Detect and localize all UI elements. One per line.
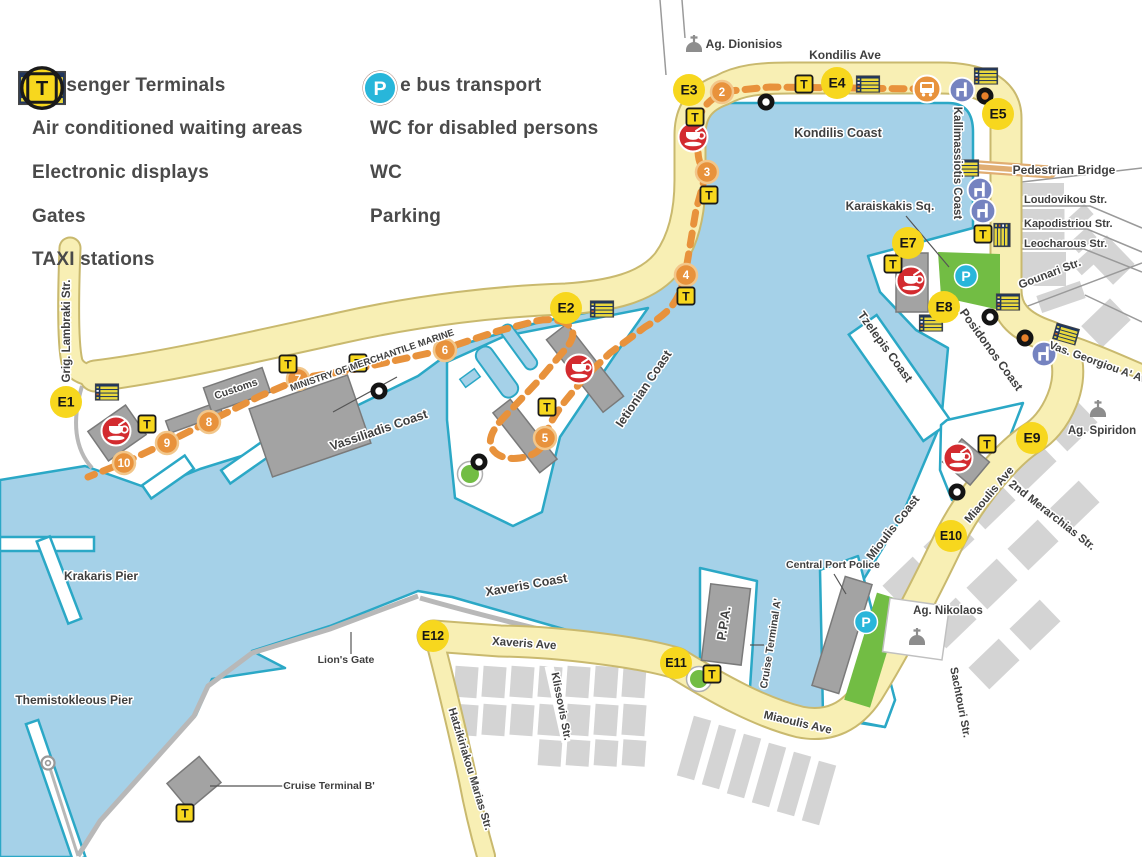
wc-icon bbox=[758, 94, 775, 111]
legend-label: Parking bbox=[370, 206, 441, 228]
legend-label: Electronic displays bbox=[32, 162, 209, 184]
city-block bbox=[622, 739, 647, 767]
taxi-icon: T bbox=[677, 287, 694, 304]
terminal-icon bbox=[679, 123, 708, 152]
map-label: Lion's Gate bbox=[318, 654, 375, 666]
taxi-label: T bbox=[284, 357, 292, 371]
city-block bbox=[966, 559, 1017, 610]
display-icon bbox=[856, 76, 879, 92]
map-label: Kondilis Ave bbox=[809, 48, 881, 62]
map-label: Leocharous Str. bbox=[1024, 238, 1107, 250]
gate-label: E3 bbox=[680, 82, 697, 98]
map-label: Ag. Dionisios bbox=[706, 37, 783, 51]
waiting-icon bbox=[950, 78, 975, 103]
wc-icon bbox=[471, 454, 488, 471]
display-icon bbox=[95, 384, 118, 400]
gate-E10-icon: E10 bbox=[935, 520, 967, 552]
display-icon bbox=[974, 68, 997, 84]
taxi-label: T bbox=[979, 227, 987, 241]
gate-E12-icon: E12 bbox=[417, 620, 449, 652]
legend-label: TAXI stations bbox=[32, 249, 155, 271]
gate-E1-icon: E1 bbox=[50, 386, 82, 418]
free-bus-icon bbox=[914, 76, 941, 103]
taxi-icon: T bbox=[974, 225, 991, 242]
taxi-label: T bbox=[708, 667, 716, 681]
legend-item-parking: P Parking bbox=[356, 195, 598, 239]
gate-label: E9 bbox=[1023, 430, 1040, 446]
gate-label: E12 bbox=[422, 629, 444, 643]
street-line bbox=[682, 0, 685, 38]
gate-E8-icon: E8 bbox=[928, 291, 960, 323]
taxi-label: T bbox=[181, 806, 189, 820]
route-stop-5-icon: 5 bbox=[534, 427, 556, 449]
taxi-icon: T bbox=[538, 398, 555, 415]
taxi-label: T bbox=[889, 257, 897, 271]
gate-label: E1 bbox=[57, 394, 74, 410]
route-stop-3-icon: 3 bbox=[696, 161, 718, 183]
taxi-label: T bbox=[543, 400, 551, 414]
taxi-icon: T bbox=[686, 108, 703, 125]
taxi-icon: T bbox=[795, 75, 812, 92]
city-block bbox=[481, 666, 506, 699]
stop-label: 6 bbox=[442, 345, 448, 357]
legend-right-column: Free bus transport WC for disabled perso… bbox=[356, 64, 598, 238]
taxi-label: T bbox=[143, 417, 151, 431]
display-icon bbox=[590, 301, 613, 317]
city-block bbox=[509, 666, 534, 699]
parking-icon: P bbox=[855, 611, 878, 634]
route-stop-8-icon: 8 bbox=[198, 411, 220, 433]
map-label: Kondilis Coast bbox=[794, 126, 882, 140]
city-block bbox=[1009, 600, 1060, 651]
gate-E5-icon: E5 bbox=[982, 98, 1014, 130]
church-icon bbox=[686, 35, 702, 52]
parking-icon: P bbox=[356, 64, 404, 112]
map-label: Loudovikou Str. bbox=[1024, 194, 1107, 206]
legend-item-wc: WC bbox=[356, 151, 598, 195]
city-block bbox=[593, 704, 618, 737]
parking-label: P bbox=[373, 78, 386, 100]
gate-E4-icon: E4 bbox=[821, 67, 853, 99]
church-icon bbox=[1090, 400, 1106, 417]
city-block bbox=[968, 639, 1019, 690]
wc-icon bbox=[949, 484, 966, 501]
wc-icon bbox=[371, 383, 388, 400]
gate-E2-icon: E2 bbox=[550, 292, 582, 324]
taxi-icon: T bbox=[279, 355, 296, 372]
parking-icon: P bbox=[364, 72, 396, 104]
route-stop-9-icon: 9 bbox=[156, 432, 178, 454]
taxi-label: T bbox=[800, 77, 808, 91]
map-label: Ag. Spiridon bbox=[1068, 425, 1136, 437]
city-block bbox=[509, 704, 534, 737]
legend-item-gates: E Gates bbox=[18, 195, 303, 239]
legend-item-electronic-displays: Electronic displays bbox=[18, 151, 303, 195]
taxi-label: T bbox=[983, 437, 991, 451]
gate-label: E8 bbox=[935, 299, 952, 315]
map-label: Themistokleous Pier bbox=[15, 693, 133, 707]
map-label: Central Port Police bbox=[786, 559, 880, 571]
gate-label: E2 bbox=[557, 300, 574, 316]
stop-label: 9 bbox=[164, 438, 170, 450]
map-label: Grig. Lambraki Str. bbox=[61, 280, 73, 383]
taxi-label: T bbox=[682, 289, 690, 303]
legend-label: WC bbox=[370, 162, 402, 184]
map-label: Krakaris Pier bbox=[64, 569, 138, 583]
taxi-icon: T bbox=[138, 415, 155, 432]
route-stop-2-icon: 2 bbox=[711, 81, 733, 103]
city-block bbox=[594, 739, 619, 767]
wc-icon bbox=[982, 309, 999, 326]
taxi-icon: T bbox=[176, 804, 193, 821]
gate-label: E7 bbox=[899, 235, 916, 251]
city-block bbox=[566, 739, 591, 767]
map-label: Ag. Nikolaos bbox=[913, 605, 983, 617]
lighthouse-icon bbox=[42, 757, 55, 770]
map-label: Cruise Terminal B' bbox=[283, 780, 375, 792]
city-block bbox=[1007, 520, 1058, 571]
gate-label: E4 bbox=[828, 75, 845, 91]
route-stop-10-icon: 10 bbox=[113, 452, 135, 474]
cruise-terminal-b-building bbox=[167, 756, 221, 809]
wc-disabled-icon bbox=[1017, 330, 1034, 347]
taxi-station-icon: T bbox=[18, 64, 66, 112]
taxi-icon: T bbox=[978, 435, 995, 452]
taxi-label: T bbox=[691, 110, 699, 124]
route-stop-4-icon: 4 bbox=[675, 264, 697, 286]
city-block bbox=[621, 704, 646, 737]
map-label: Kallimassiotis Coast bbox=[951, 107, 963, 220]
taxi-icon: T bbox=[884, 255, 901, 272]
city-block bbox=[538, 739, 563, 767]
display-icon bbox=[996, 294, 1019, 310]
piraeus-port-map: 2345678910PPTTTTTTTTTTTTTE1E2E3E4E5E7E8E… bbox=[0, 0, 1142, 857]
stop-label: 4 bbox=[683, 270, 690, 282]
taxi-icon: T bbox=[700, 186, 717, 203]
city-block bbox=[481, 704, 506, 737]
gate-label: E5 bbox=[989, 106, 1006, 122]
parking-label: P bbox=[861, 614, 870, 630]
display-icon bbox=[994, 223, 1010, 246]
street-line bbox=[660, 0, 666, 75]
gate-E3-icon: E3 bbox=[673, 74, 705, 106]
stop-label: 5 bbox=[542, 433, 549, 445]
legend-item-wc-disabled: WC for disabled persons bbox=[356, 108, 598, 152]
legend-item-taxi-stations: T TAXI stations bbox=[18, 238, 303, 282]
parking-label: P bbox=[961, 268, 970, 284]
terminal-icon bbox=[565, 355, 594, 384]
map-label: Kapodistriou Str. bbox=[1024, 218, 1113, 230]
gate-label: E10 bbox=[940, 529, 962, 543]
stop-label: 3 bbox=[704, 167, 710, 179]
taxi-label: T bbox=[705, 188, 713, 202]
map-label: Karaiskakis Sq. bbox=[846, 199, 935, 213]
gate-E9-icon: E9 bbox=[1016, 422, 1048, 454]
taxi-icon: T bbox=[703, 665, 720, 682]
legend: Passenger Terminals Air conditioned wait… bbox=[18, 64, 303, 282]
stop-label: 8 bbox=[206, 417, 213, 429]
legend-label: Gates bbox=[32, 206, 86, 228]
taxi-label: T bbox=[36, 78, 49, 100]
legend-item-waiting-areas: Air conditioned waiting areas bbox=[18, 108, 303, 152]
taxi-icon: T bbox=[28, 74, 57, 103]
parking-icon: P bbox=[955, 265, 978, 288]
legend-label: Air conditioned waiting areas bbox=[32, 118, 303, 140]
gate-label: E11 bbox=[665, 656, 687, 670]
gate-E11-icon: E11 bbox=[660, 647, 692, 679]
gate-E7-icon: E7 bbox=[892, 227, 924, 259]
city-block bbox=[565, 666, 590, 699]
stop-label: 2 bbox=[719, 87, 725, 99]
map-label: Pedestrian Bridge bbox=[1013, 163, 1116, 177]
terminal-icon bbox=[944, 444, 973, 473]
waiting-icon bbox=[971, 199, 996, 224]
stop-label: 10 bbox=[118, 458, 131, 470]
legend-label: WC for disabled persons bbox=[370, 118, 598, 140]
terminal-icon bbox=[102, 417, 131, 446]
city-block bbox=[593, 666, 618, 699]
